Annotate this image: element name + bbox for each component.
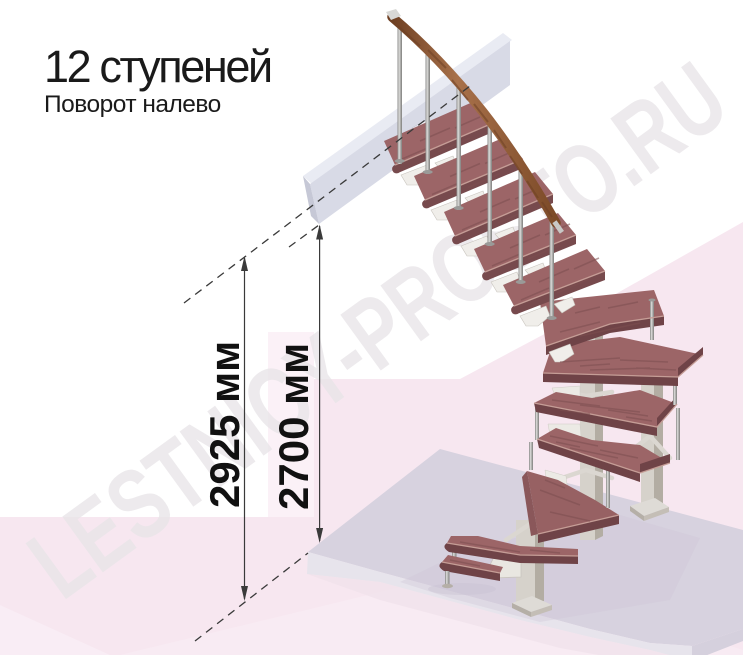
svg-text:2925 мм: 2925 мм — [201, 341, 248, 508]
svg-text:2700 мм: 2700 мм — [270, 343, 317, 510]
svg-text:12 ступеней: 12 ступеней — [44, 41, 271, 92]
svg-text:Поворот налево: Поворот налево — [44, 91, 221, 118]
